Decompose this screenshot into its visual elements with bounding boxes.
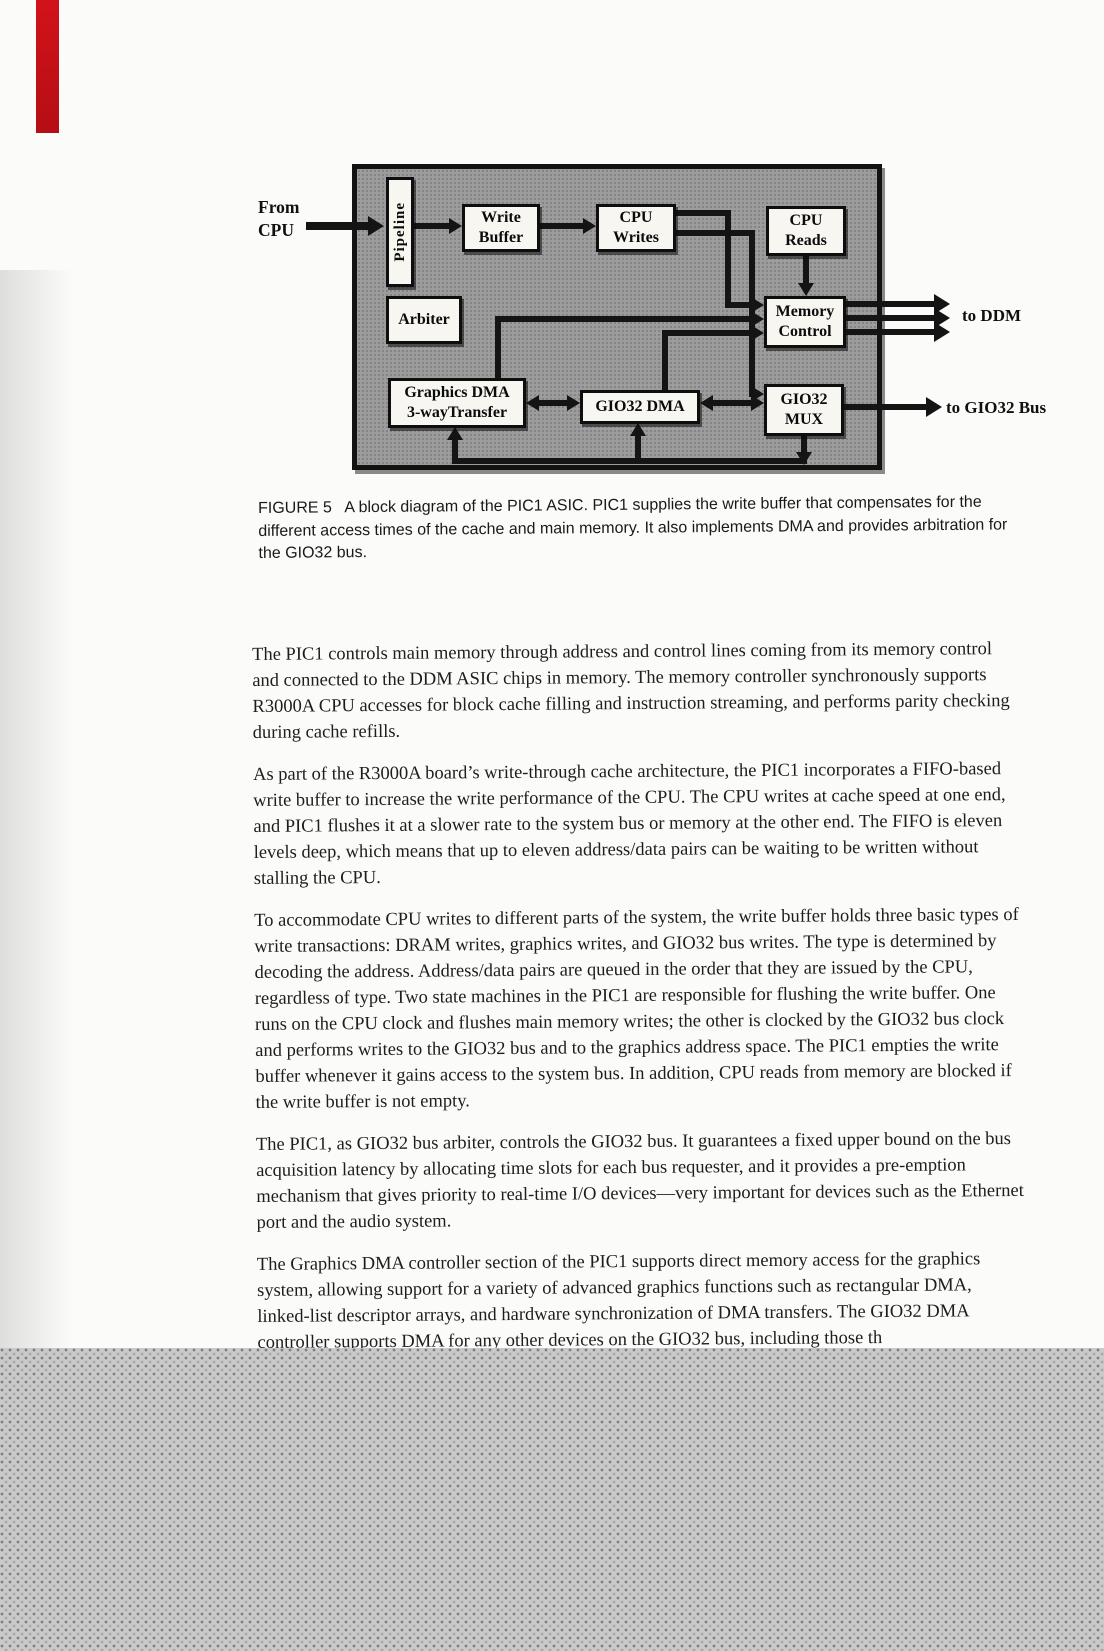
- arrow-gio32-dma-to-memory-control-head-icon: [751, 325, 764, 341]
- from-cpu-label: From CPU: [258, 196, 299, 242]
- memory-control-label-line1: Memory: [776, 302, 835, 322]
- graphics-dma-label-line2: 3-wayTransfer: [407, 403, 507, 423]
- cpu-reads-label-line1: CPU: [790, 211, 823, 231]
- arrow-cpu-reads-to-memory-control-head-icon: [798, 283, 814, 296]
- arrow-to-ddm-line-3: [846, 329, 938, 335]
- gio32-mux-label-line2: MUX: [785, 410, 823, 430]
- cpu-reads-label-line2: Reads: [785, 231, 827, 251]
- scanned-paper-page: From CPU Pipeline Write Buffer CPU Write…: [0, 0, 1104, 1651]
- write-buffer-label-line2: Buffer: [479, 228, 523, 248]
- halftone-scan-area: [0, 1348, 1104, 1651]
- figure-caption: FIGURE 5 A block diagram of the PIC1 ASI…: [258, 491, 1025, 565]
- from-cpu-label-line1: From: [258, 196, 299, 219]
- scan-edge-shadow: [0, 270, 72, 1350]
- loop-up-gio32dma-line: [635, 434, 641, 464]
- arrow-write-buffer-to-cpu-writes-line: [540, 223, 584, 229]
- gio32-mux-label-line1: GIO32: [780, 390, 827, 410]
- cpu-writes-label-line1: CPU: [620, 208, 653, 228]
- gio32-dma-label: GIO32 DMA: [595, 397, 684, 417]
- memory-control-label-line2: Control: [778, 322, 831, 342]
- red-bookmark-strip: [36, 0, 59, 133]
- arrow-pipeline-to-write-buffer-head-icon: [449, 218, 462, 234]
- arrow-from-cpu-line: [306, 222, 370, 230]
- arrow-to-ddm-head-3-icon: [934, 322, 950, 342]
- arrow-to-gio32-bus-head-icon: [926, 397, 942, 417]
- arrow-gdma-gio32dma-line: [539, 400, 567, 406]
- write-buffer-label-line1: Write: [481, 208, 521, 228]
- arrow-to-gio32-bus-line: [844, 404, 930, 410]
- arrow-cpu-writes-lower-h1: [676, 230, 755, 236]
- arrow-gio32-dma-to-memory-control-h: [662, 330, 754, 336]
- cpu-writes-label-line2: Writes: [613, 228, 659, 248]
- arrow-write-buffer-to-cpu-writes-head-icon: [583, 218, 596, 234]
- arrow-cpu-writes-upper-v: [725, 210, 731, 308]
- loop-up-gdma-line: [452, 437, 458, 464]
- paragraph-memory-control: The PIC1 controls main memory through ad…: [252, 636, 1021, 746]
- loop-bottom-line: [452, 458, 807, 464]
- arrow-to-ddm-line-1: [846, 301, 938, 307]
- paragraph-graphics-dma: The Graphics DMA controller section of t…: [257, 1246, 1026, 1356]
- to-ddm-label: to DDM: [962, 304, 1021, 327]
- pipeline-box: Pipeline: [386, 177, 414, 287]
- paragraph-write-buffer: As part of the R3000A board’s write-thro…: [253, 756, 1022, 892]
- arrow-gio32dma-mux-left-head-icon: [700, 395, 713, 411]
- arrow-gio32dma-mux-right-head-icon: [751, 395, 764, 411]
- arrow-to-ddm-line-2: [846, 315, 938, 321]
- graphics-dma-label-line1: Graphics DMA: [404, 383, 509, 403]
- loop-up-gio32dma-head-icon: [630, 423, 646, 436]
- arrow-from-cpu-head-icon: [368, 216, 384, 236]
- arrow-gio32dma-mux-line: [713, 400, 751, 406]
- memory-control-box: Memory Control: [764, 296, 846, 348]
- cpu-writes-box: CPU Writes: [596, 204, 676, 252]
- arrow-graphics-dma-to-memory-control-h: [495, 316, 751, 322]
- paragraph-write-transactions: To accommodate CPU writes to different p…: [254, 902, 1024, 1116]
- arrow-cpu-writes-upper-h1: [676, 210, 731, 216]
- arrow-pipeline-to-write-buffer-line: [414, 223, 450, 229]
- pipeline-box-label: Pipeline: [390, 202, 410, 262]
- arrow-gdma-gio32dma-left-head-icon: [526, 395, 539, 411]
- to-gio32-bus-label: to GIO32 Bus: [946, 396, 1046, 419]
- arbiter-label: Arbiter: [398, 310, 450, 330]
- gio32-mux-box: GIO32 MUX: [764, 384, 844, 436]
- loop-mux-down-head-icon: [796, 452, 812, 465]
- gio32-dma-box: GIO32 DMA: [580, 390, 700, 424]
- arrow-cpu-reads-to-memory-control-line: [803, 256, 809, 284]
- write-buffer-box: Write Buffer: [462, 204, 540, 252]
- cpu-reads-box: CPU Reads: [766, 206, 846, 256]
- from-cpu-label-line2: CPU: [258, 219, 299, 242]
- paragraph-bus-arbiter: The PIC1, as GIO32 bus arbiter, controls…: [256, 1126, 1025, 1236]
- loop-up-gdma-head-icon: [447, 427, 463, 440]
- arrow-graphics-dma-to-memory-control-v: [495, 319, 501, 378]
- pic1-asic-diagram: Pipeline Write Buffer CPU Writes CPU Rea…: [352, 164, 882, 470]
- graphics-dma-box: Graphics DMA 3-wayTransfer: [388, 378, 526, 428]
- arrow-gio32-dma-to-memory-control-v: [662, 333, 668, 390]
- arrow-gdma-gio32dma-right-head-icon: [567, 395, 580, 411]
- body-text: The PIC1 controls main memory through ad…: [252, 636, 1026, 1372]
- arbiter-box: Arbiter: [386, 296, 462, 344]
